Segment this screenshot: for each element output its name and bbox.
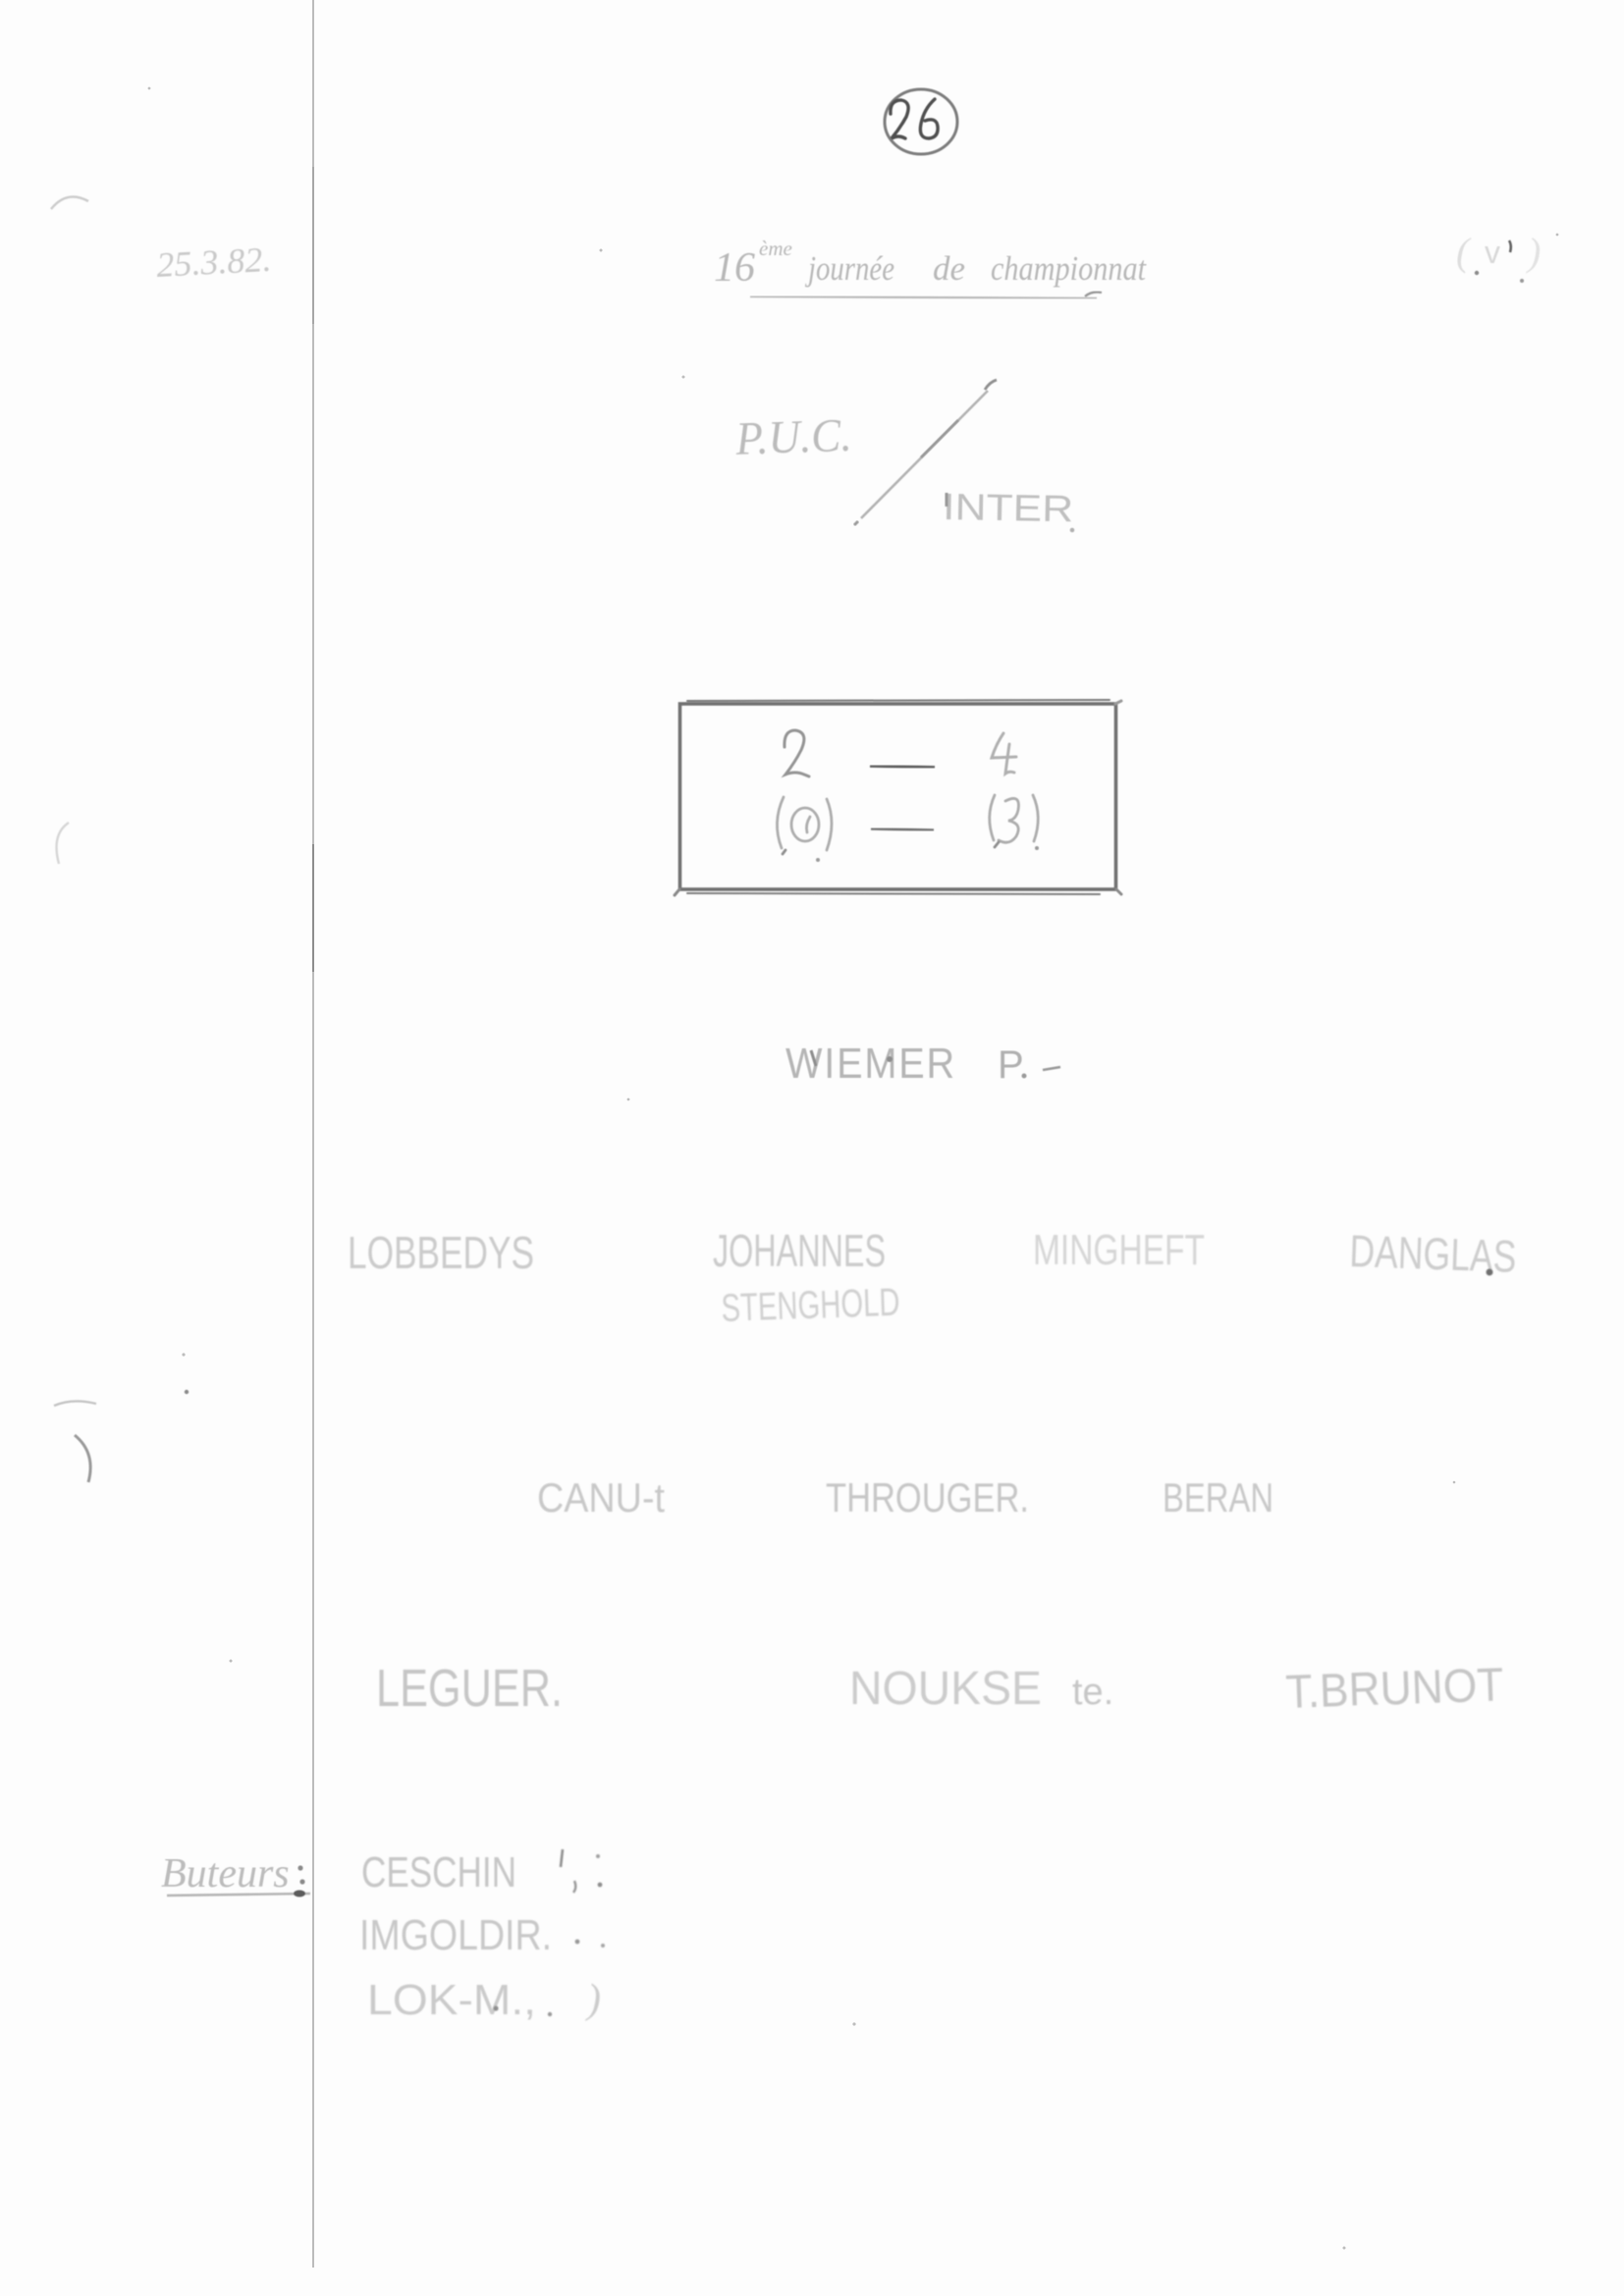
svg-text:LOK-M.,: LOK-M.,: [367, 1976, 536, 2024]
svg-text:BERAN: BERAN: [1163, 1474, 1273, 1521]
svg-text:LOBBEDYS: LOBBEDYS: [348, 1227, 534, 1278]
svg-text:MINGHEFT: MINGHEFT: [1033, 1226, 1205, 1274]
svg-text:CANU-t: CANU-t: [537, 1474, 665, 1521]
svg-text:v: v: [1485, 235, 1500, 270]
svg-text:25.3.82.: 25.3.82.: [155, 240, 272, 285]
svg-text:): ): [1526, 230, 1541, 274]
svg-text:Buteurs: Buteurs: [161, 1851, 290, 1896]
svg-text:te.: te.: [1072, 1672, 1113, 1713]
svg-text:STENGHOLD: STENGHOLD: [721, 1281, 900, 1330]
svg-text:P: P: [998, 1043, 1024, 1087]
svg-text:ème: ème: [759, 237, 792, 260]
svg-text:P.U.C.: P.U.C.: [734, 409, 853, 465]
svg-text:de: de: [933, 249, 965, 288]
svg-text:journée: journée: [805, 249, 894, 288]
svg-text:IMGOLDIR.: IMGOLDIR.: [359, 1911, 552, 1959]
svg-text:16: 16: [714, 245, 755, 291]
svg-text:): ): [585, 1977, 601, 2022]
svg-text:INTER: INTER: [943, 487, 1074, 530]
svg-text:NOUKSE: NOUKSE: [849, 1663, 1042, 1715]
svg-text:JOHANNES: JOHANNES: [713, 1225, 886, 1276]
svg-text:CESCHIN: CESCHIN: [361, 1848, 516, 1896]
svg-text:T.BRUNOT: T.BRUNOT: [1285, 1659, 1505, 1719]
svg-text:THROUGER.: THROUGER.: [826, 1474, 1029, 1521]
svg-text:championnat: championnat: [991, 249, 1147, 288]
svg-text:LEGUER.: LEGUER.: [376, 1659, 563, 1718]
svg-text:WIEMER: WIEMER: [785, 1040, 956, 1088]
